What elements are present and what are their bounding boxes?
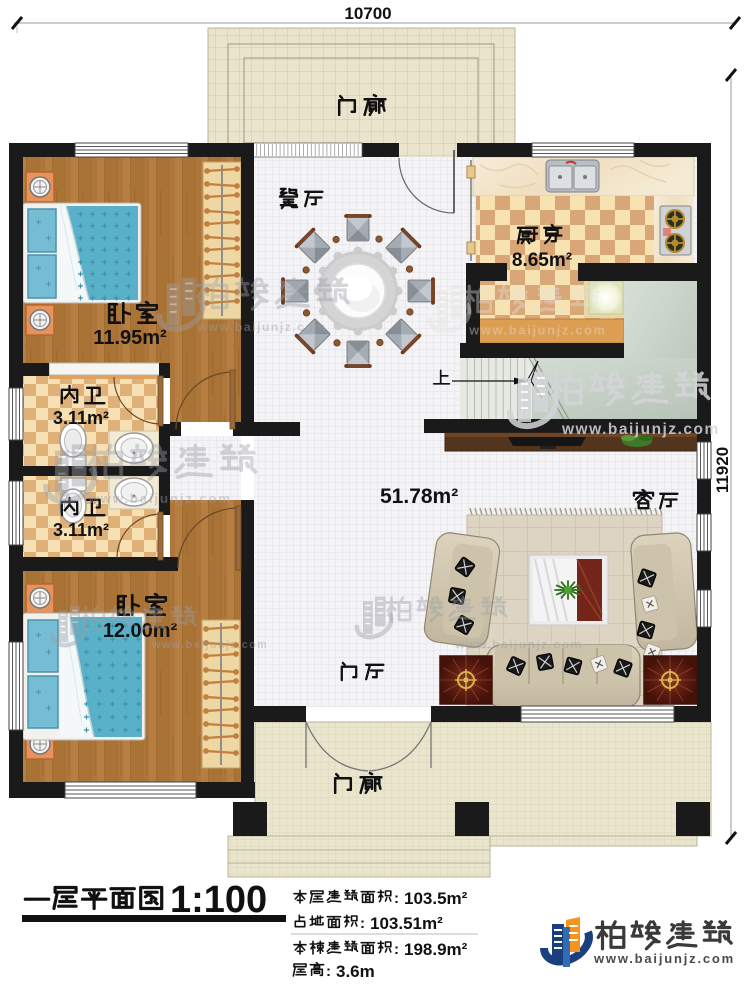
svg-text:103.51m²: 103.51m² bbox=[370, 914, 443, 933]
svg-text:198.9m²: 198.9m² bbox=[404, 940, 468, 959]
svg-text:103.5m²: 103.5m² bbox=[404, 889, 468, 908]
svg-text:www.baijunjz.com: www.baijunjz.com bbox=[561, 421, 720, 438]
svg-text:1:100: 1:100 bbox=[170, 879, 267, 921]
svg-text:8.65m²: 8.65m² bbox=[512, 250, 572, 271]
svg-text:www.baijunjz.com: www.baijunjz.com bbox=[454, 637, 583, 651]
svg-text::: : bbox=[394, 941, 399, 958]
svg-text:3.11m²: 3.11m² bbox=[53, 520, 109, 540]
svg-text:11920: 11920 bbox=[713, 447, 732, 493]
svg-text:10700: 10700 bbox=[344, 4, 391, 23]
svg-text:www.baijunjz.com: www.baijunjz.com bbox=[468, 322, 606, 337]
svg-text::: : bbox=[326, 963, 331, 980]
svg-text:51.78m²: 51.78m² bbox=[380, 485, 458, 508]
svg-text:www.baijunjz.com: www.baijunjz.com bbox=[151, 639, 268, 651]
svg-text::: : bbox=[394, 890, 399, 907]
svg-text:3.6m: 3.6m bbox=[336, 962, 375, 981]
svg-text:11.95m²: 11.95m² bbox=[93, 327, 167, 349]
svg-text:3.11m²: 3.11m² bbox=[53, 408, 109, 428]
svg-text:www.baijunjz.com: www.baijunjz.com bbox=[88, 491, 232, 506]
svg-text:www.baijunjz.com: www.baijunjz.com bbox=[196, 320, 326, 334]
svg-text:www.baijunjz.com: www.baijunjz.com bbox=[593, 951, 735, 966]
svg-text::: : bbox=[360, 915, 365, 932]
